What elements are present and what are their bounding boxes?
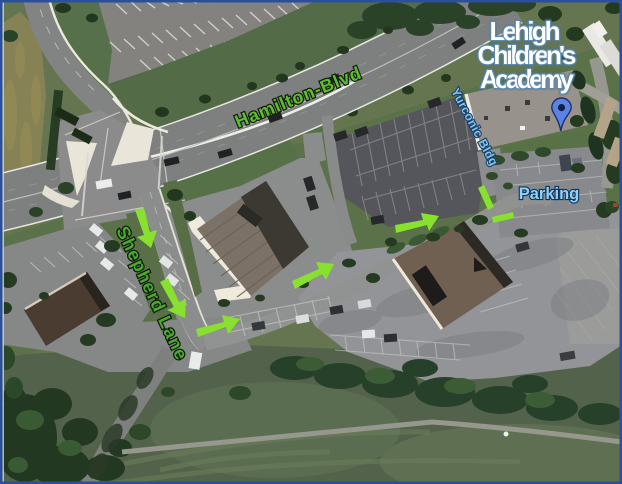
svg-text:Academy: Academy: [480, 64, 575, 94]
svg-text:Parking: Parking: [519, 185, 580, 203]
